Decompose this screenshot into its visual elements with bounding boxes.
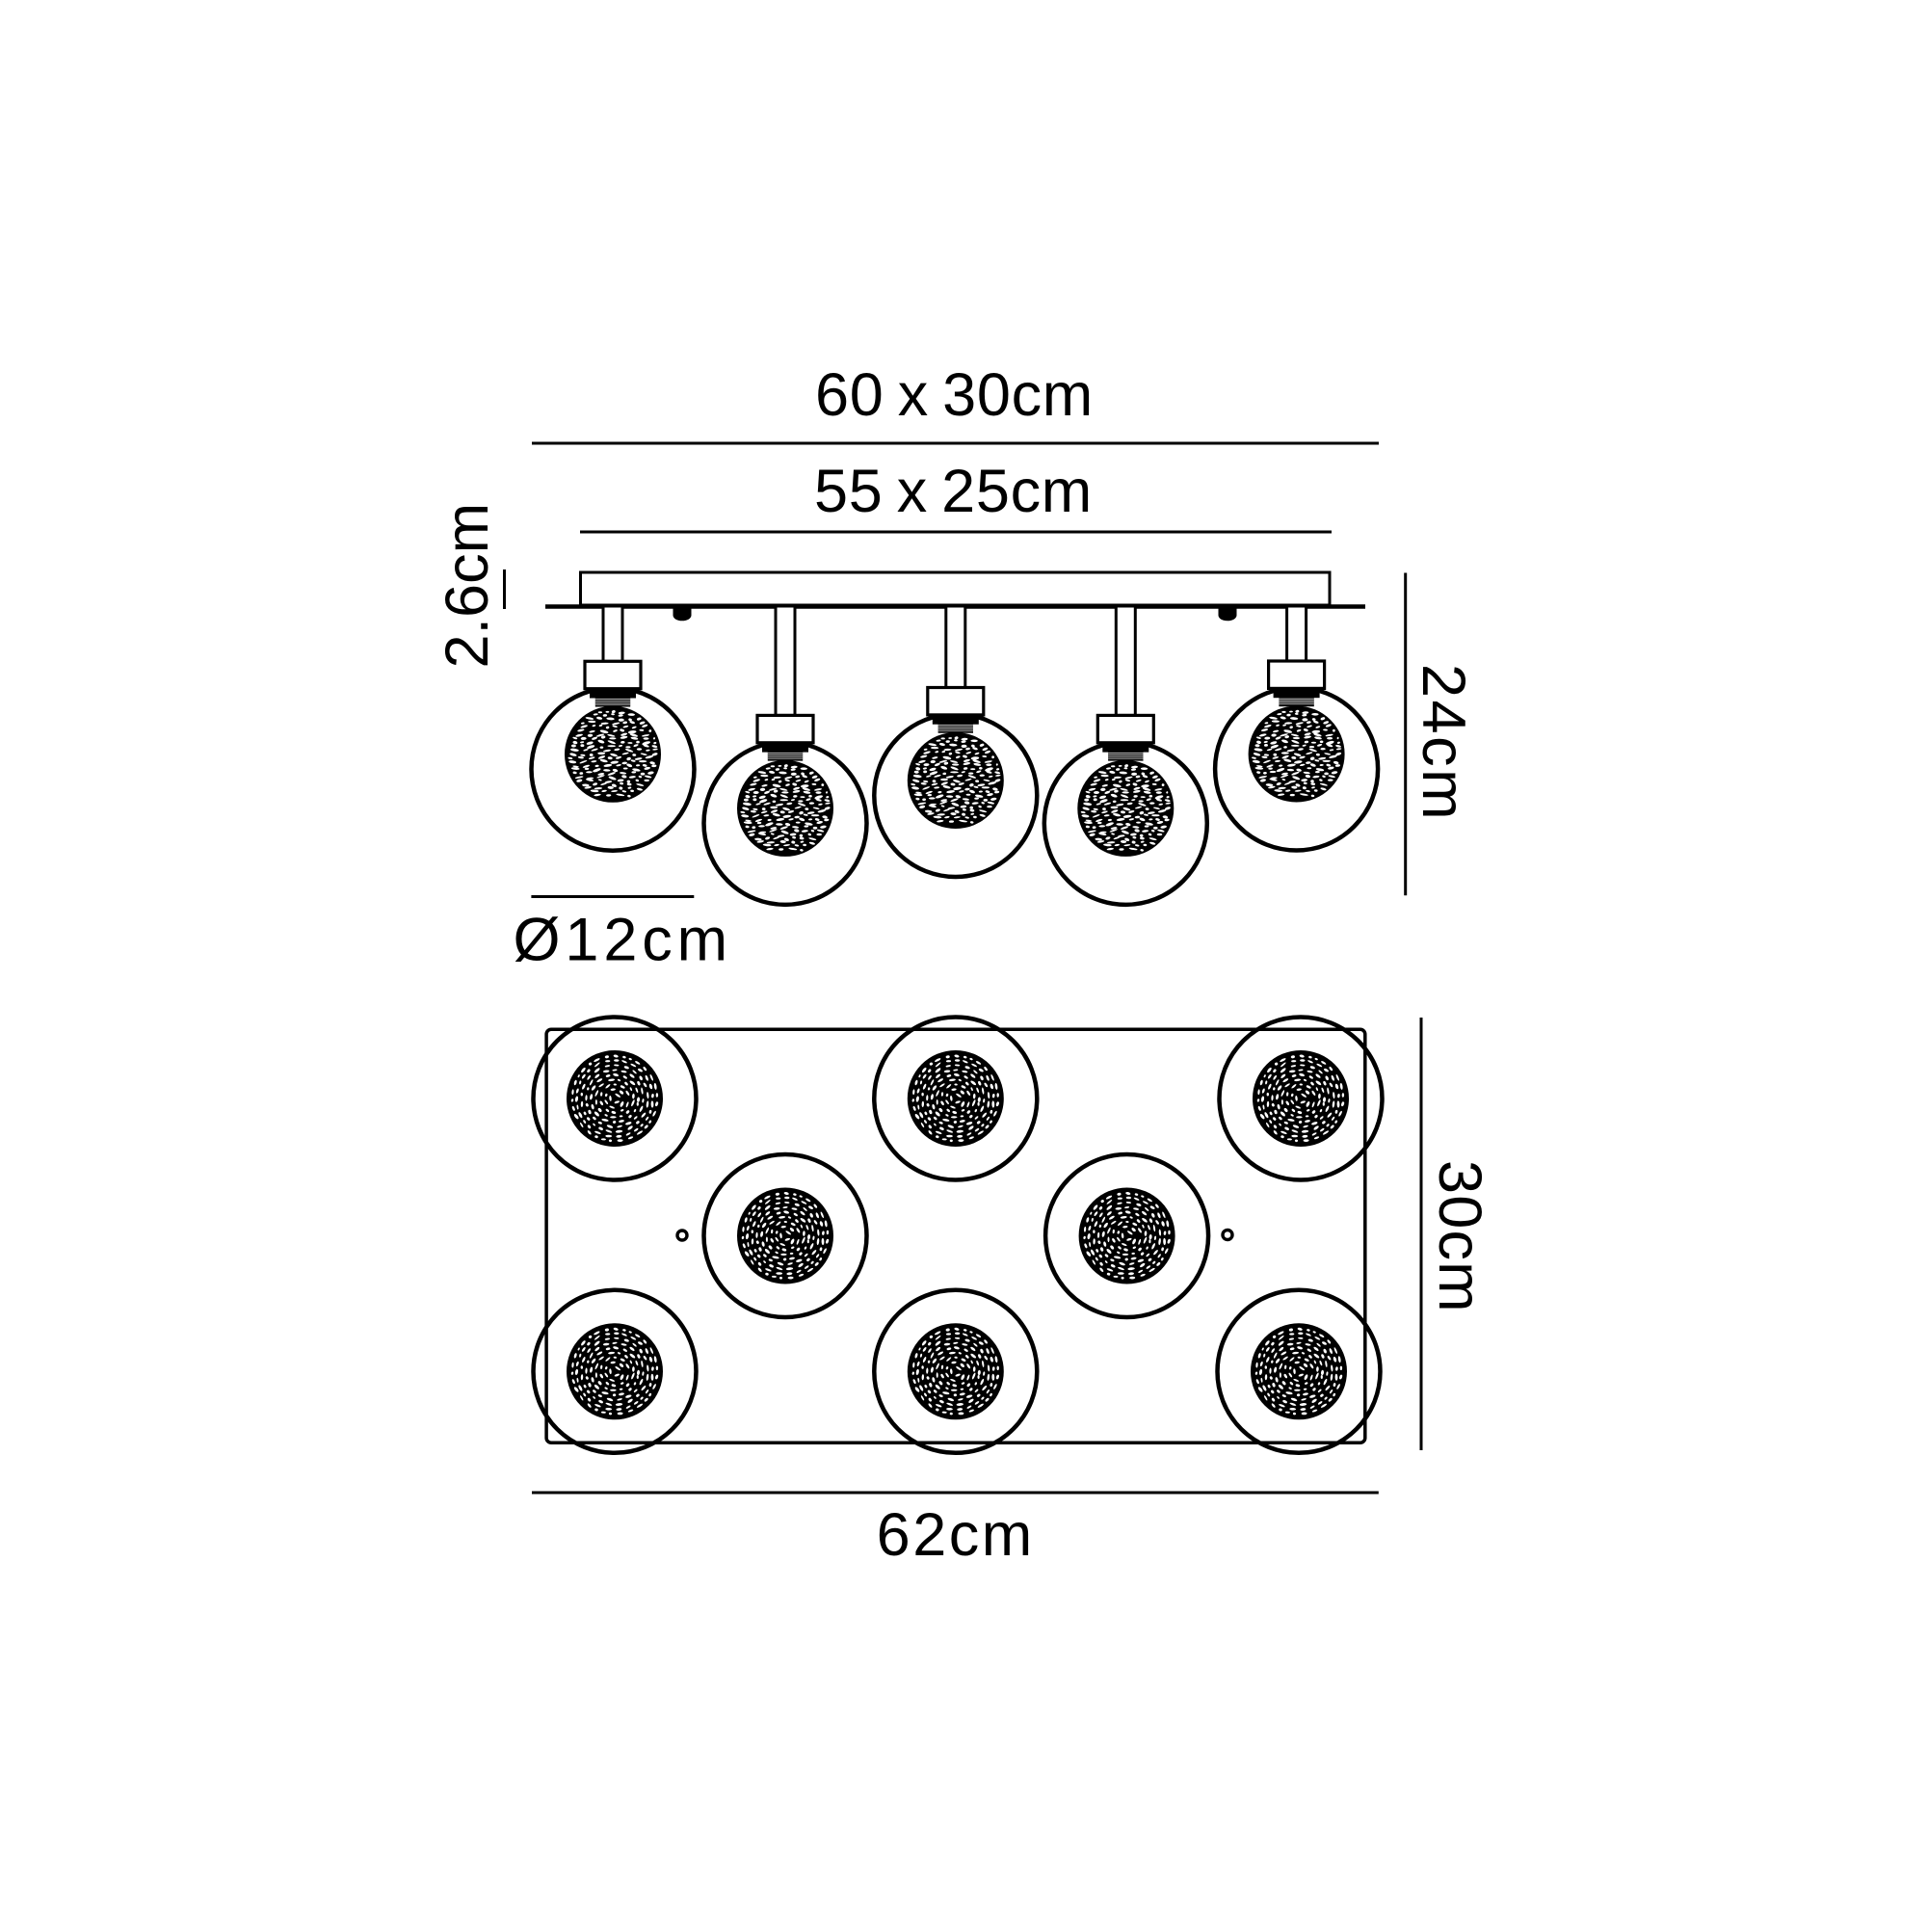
svg-text:24cm: 24cm — [1410, 664, 1477, 822]
svg-text:30cm: 30cm — [1426, 1160, 1493, 1313]
svg-text:62cm: 62cm — [877, 1501, 1035, 1569]
svg-text:Ø12cm: Ø12cm — [514, 907, 733, 974]
svg-text:2.6cm: 2.6cm — [434, 503, 501, 669]
svg-text:55 x 25cm: 55 x 25cm — [814, 458, 1093, 525]
svg-text:60 x 30cm: 60 x 30cm — [815, 361, 1094, 429]
